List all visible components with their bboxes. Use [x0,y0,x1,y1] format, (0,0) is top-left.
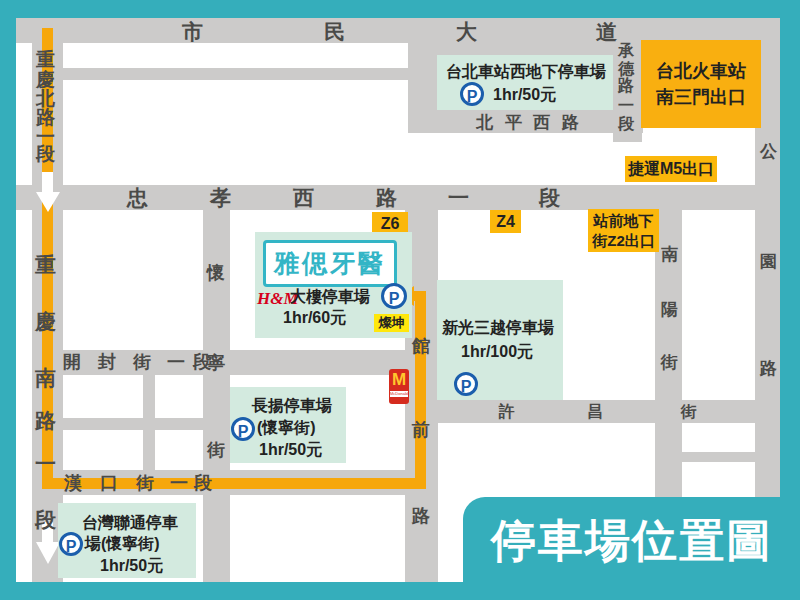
street-label-guanqian: 館 [412,337,430,355]
street-label-beiping: 北 [476,114,493,131]
route-guanqian-segment [415,291,426,489]
mrt-m5-exit-label: 捷運M5出口 [625,156,717,182]
street-label-xuchang: 許 [499,404,515,420]
street-chengde-stub [613,133,642,142]
z2-exit-label: 站前地下 街Z2出口 [588,209,659,252]
parking-icon: P [454,372,478,396]
parking-title2: 場(懷寧街) [85,534,160,555]
parking-title: 台北車站西地下停車場 [446,62,606,83]
street-minor-lane-right [682,452,755,462]
street-label-hankou: 漢 [64,474,82,492]
street-minor-lane-h [63,418,203,430]
parking-rate: 1hr/50元 [100,556,163,577]
hm-parking-rate: 1hr/60元 [283,310,346,326]
parking-icon: P [460,82,484,106]
parking-location-map: 市 民 大 道 重 慶 北 路 一 段 重 慶 南 路 一 段 忠 孝 西 路 … [0,0,800,600]
parking-rate: 1hr/50元 [259,440,322,461]
map-title-box: 停車場位置圖 [463,497,800,600]
map-title: 停車場位置圖 [491,511,773,571]
street-minor-north [63,68,408,80]
cankun-store-label: 燦坤 [374,314,409,332]
south-arrow-top-shaft [42,172,53,192]
south-arrow-bottom-icon [36,542,60,564]
parking-title: 新光三越停車場 [442,318,554,339]
street-label-huaining: 懷 [207,264,225,282]
mcdonalds-logo: M McDonald's [389,369,409,404]
street-label-chongqing-south: 重 [35,254,56,275]
street-label-shimin: 市 [182,21,203,42]
parking-icon: P [59,532,83,556]
south-arrow-top-icon [36,192,60,212]
parking-rate: 1hr/100元 [461,342,533,363]
parking-icon: P [381,283,407,309]
street-label-chengde: 承 [618,43,634,59]
parking-rate: 1hr/50元 [493,85,556,106]
street-label-gongyuan: 公 [760,143,777,160]
dental-clinic-sign: 雅偲牙醫 [263,240,397,287]
station-south-exit-box: 台北火車站 南三門出口 [641,40,761,128]
street-label-kaifeng: 開 [63,353,81,371]
parking-title: 長揚停車場 [252,396,332,417]
parking-title: 台灣聯通停車 [82,513,178,534]
mcdonalds-arches-icon: M [392,370,406,389]
parking-subtitle: (懷寧街) [257,418,316,439]
hm-parking-label: 大樓停車場 [290,289,370,305]
street-label-chongqing-north: 重 [36,50,55,69]
parking-icon: P [231,417,255,441]
z4-exit-label: Z4 [490,210,521,233]
street-label-nanyang: 南 [661,246,678,263]
street-label-zhongxiao: 忠 [127,187,148,208]
